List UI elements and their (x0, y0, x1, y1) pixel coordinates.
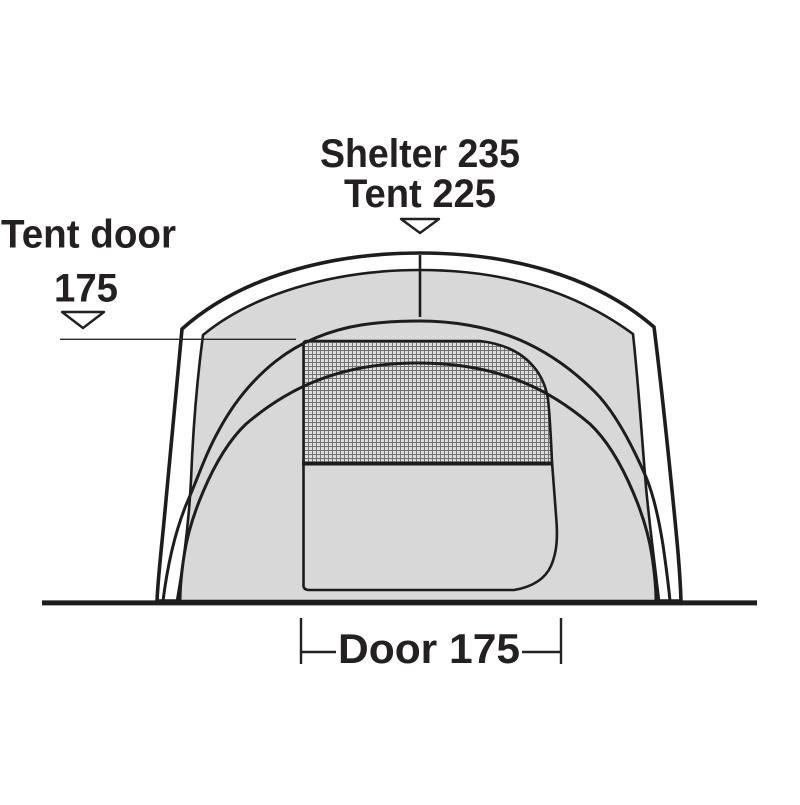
svg-text:Tent door: Tent door (1, 213, 176, 257)
svg-text:Shelter 235: Shelter 235 (320, 132, 520, 176)
svg-text:175: 175 (54, 267, 118, 311)
svg-text:Tent 225: Tent 225 (344, 172, 496, 216)
svg-text:Door 175: Door 175 (338, 625, 520, 672)
